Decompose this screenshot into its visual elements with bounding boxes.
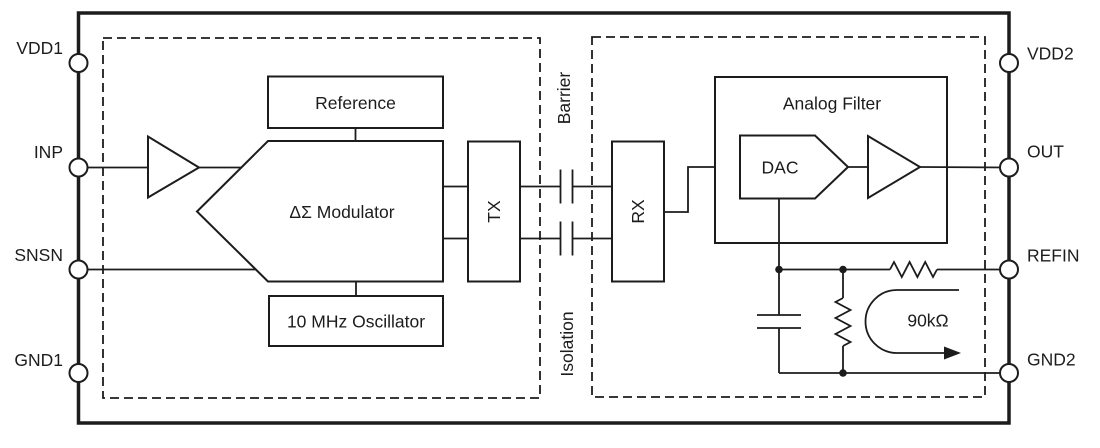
analog-filter-label: Analog Filter bbox=[783, 94, 881, 114]
filter-capacitor bbox=[757, 270, 801, 374]
pin-out bbox=[1000, 159, 1018, 177]
junction-dot bbox=[839, 369, 847, 377]
isolated-amplifier-block-diagram: Barrier Isolation Reference ΔΣ Modulator… bbox=[0, 0, 1100, 443]
pin-label-inp: INP bbox=[34, 142, 63, 162]
pin-vdd1 bbox=[70, 54, 88, 72]
output-wire bbox=[920, 167, 1009, 168]
pin-label-gnd1: GND1 bbox=[14, 350, 63, 370]
diagram-canvas: Barrier Isolation Reference ΔΣ Modulator… bbox=[0, 0, 1100, 443]
dac-label: DAC bbox=[762, 158, 799, 178]
pin-label-out: OUT bbox=[1027, 142, 1064, 162]
tx-label: TX bbox=[484, 200, 504, 223]
pin-inp bbox=[70, 159, 88, 177]
junction-dot bbox=[775, 266, 783, 274]
pin-label-vdd1: VDD1 bbox=[16, 38, 63, 58]
junction-dot bbox=[839, 266, 847, 274]
reference-label: Reference bbox=[315, 93, 396, 113]
pin-label-vdd2: VDD2 bbox=[1027, 44, 1074, 64]
pin-gnd2 bbox=[1000, 364, 1018, 382]
shunt-resistor bbox=[836, 270, 851, 374]
pin-refin bbox=[1000, 261, 1018, 279]
modulator-label: ΔΣ Modulator bbox=[289, 202, 394, 222]
pin-snsn bbox=[70, 261, 88, 279]
pin-label-snsn: SNSN bbox=[14, 245, 63, 265]
modulator-tx-wires bbox=[443, 187, 468, 239]
pin-vdd2 bbox=[1000, 54, 1018, 72]
refin-series-resistor bbox=[890, 262, 937, 277]
internal-resistance-label: 90kΩ bbox=[907, 311, 948, 331]
pin-gnd1 bbox=[70, 364, 88, 382]
isolation-barrier-label-top: Barrier bbox=[554, 72, 574, 125]
input-amplifier-triangle bbox=[148, 137, 199, 198]
isolation-capacitor-top bbox=[520, 170, 612, 204]
rx-label: RX bbox=[628, 199, 648, 224]
isolation-capacitor-bottom bbox=[520, 222, 612, 256]
oscillator-label: 10 MHz Oscillator bbox=[287, 312, 425, 332]
pin-label-gnd2: GND2 bbox=[1027, 350, 1076, 370]
pin-label-refin: REFIN bbox=[1027, 246, 1080, 266]
arrowhead-icon bbox=[944, 347, 961, 360]
isolation-barrier-label-bottom: Isolation bbox=[557, 311, 577, 376]
